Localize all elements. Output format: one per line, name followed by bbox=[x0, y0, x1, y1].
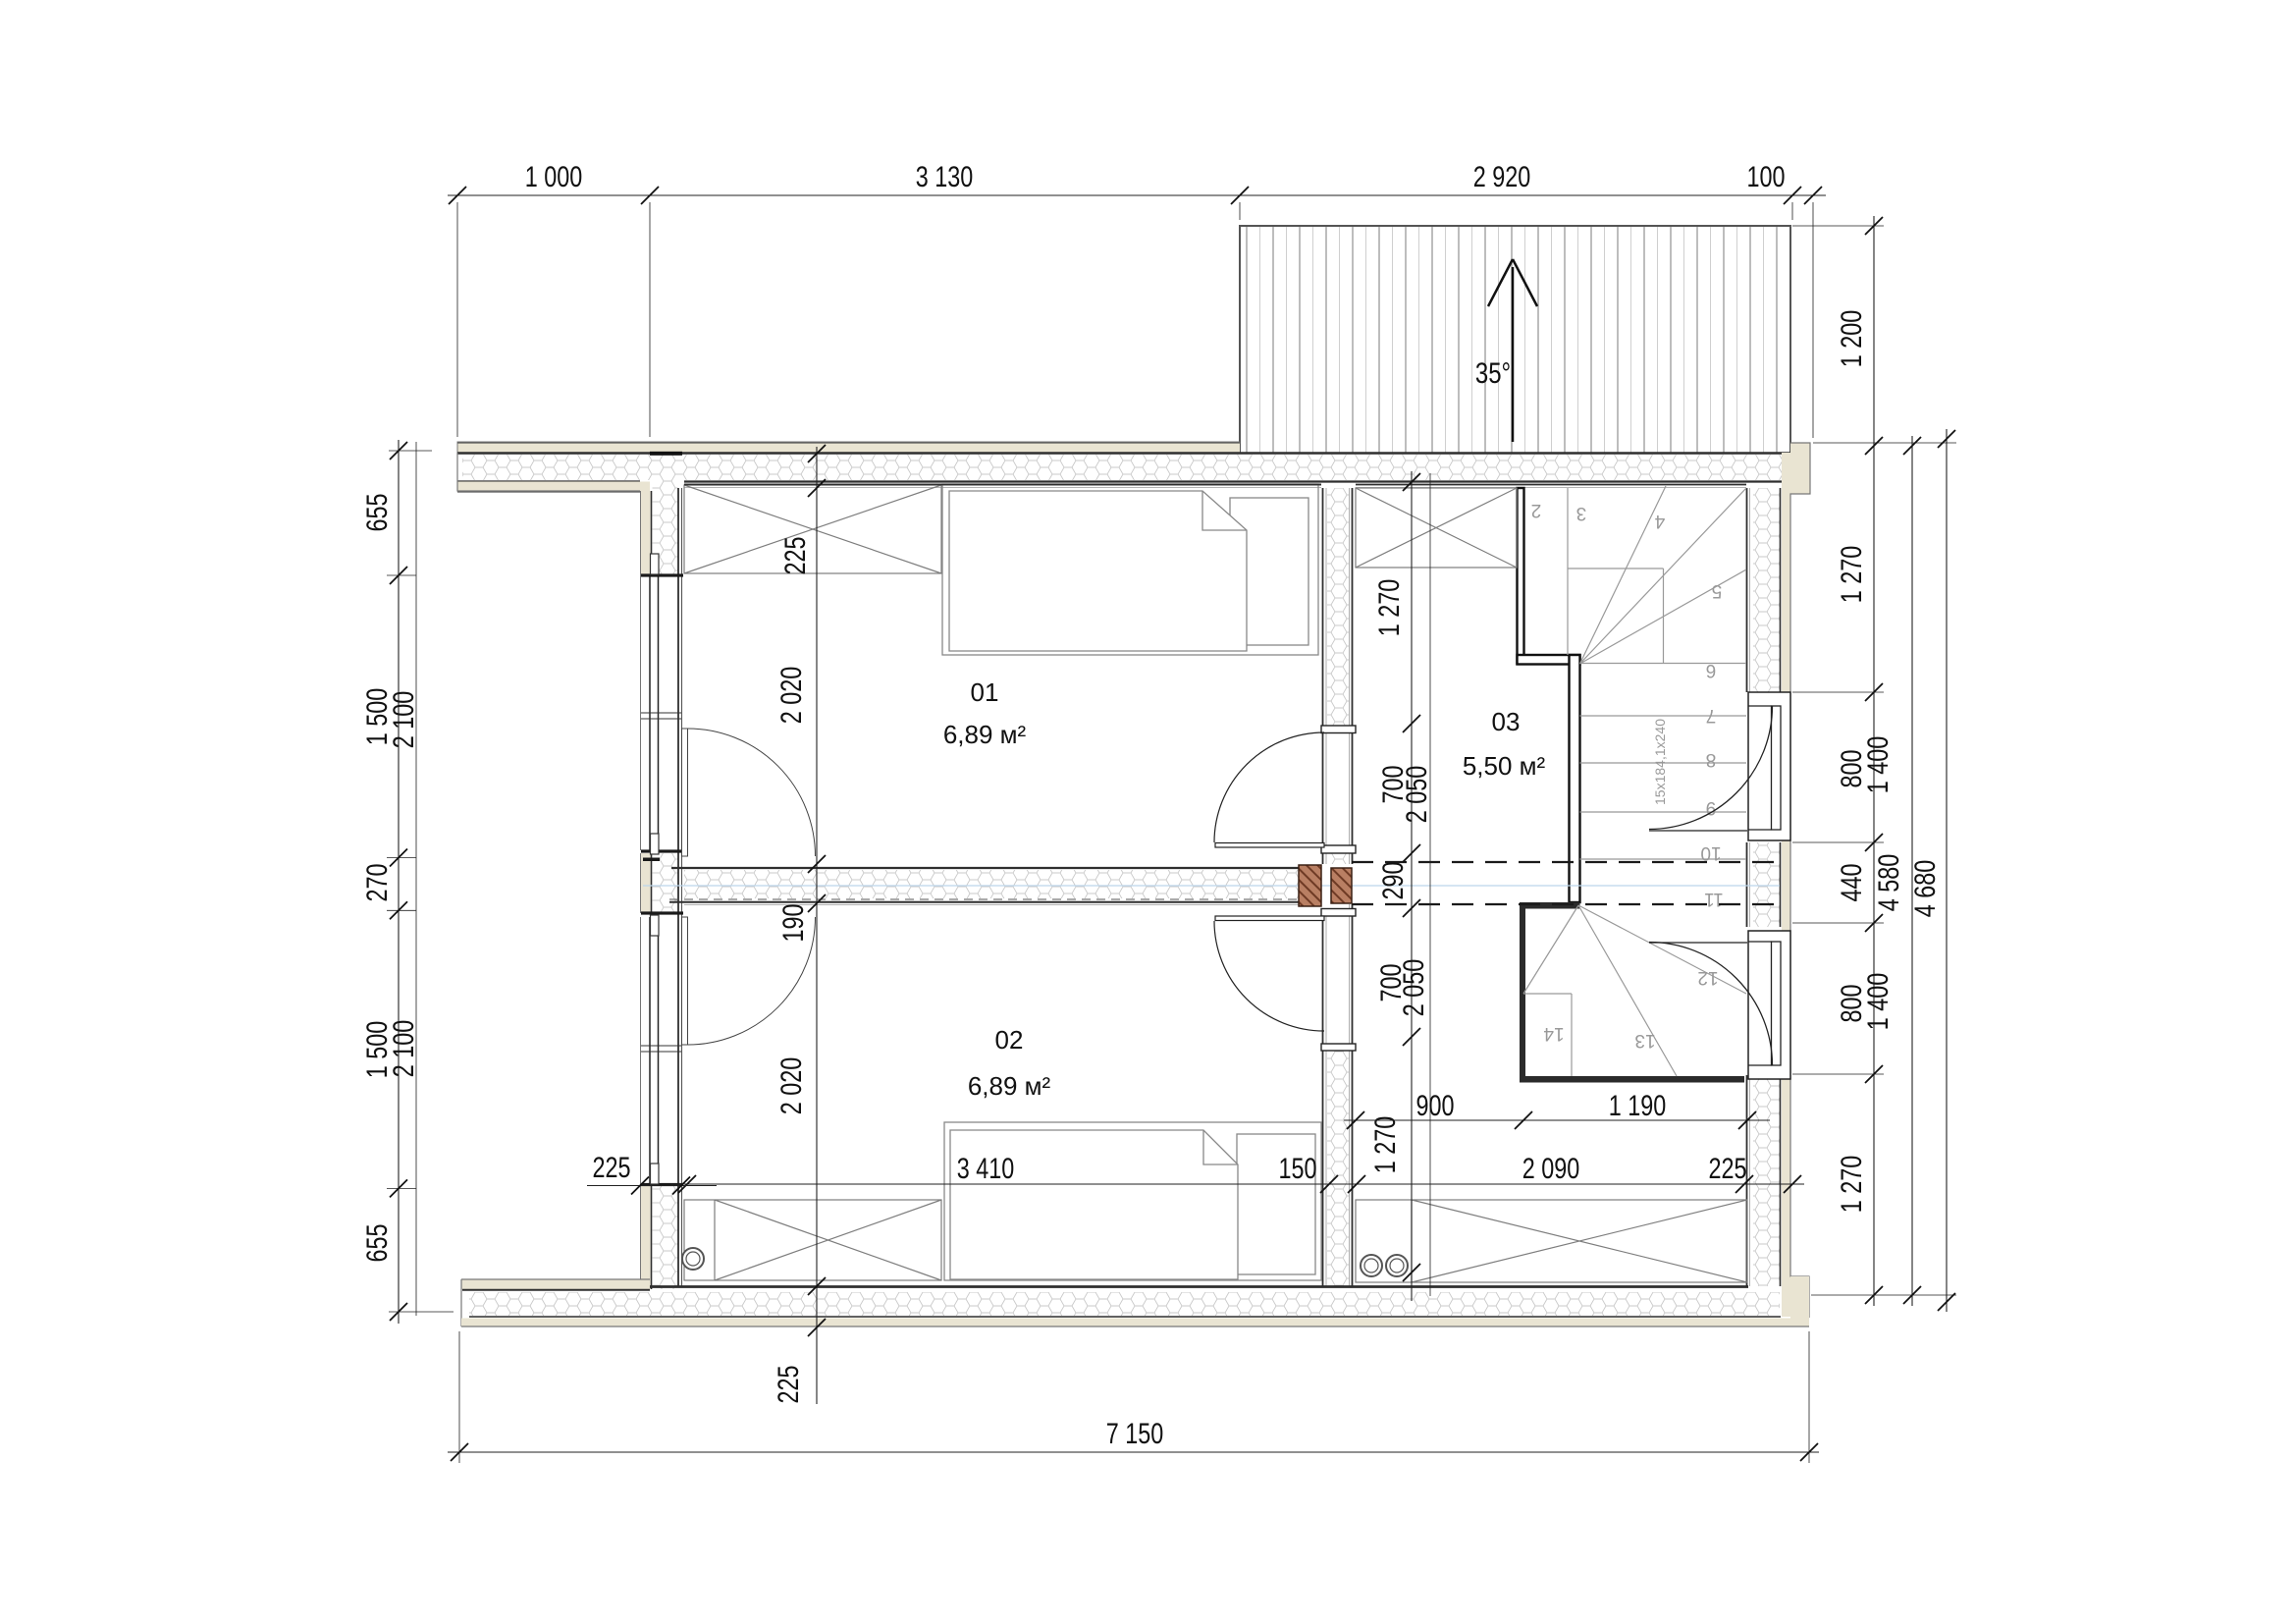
svg-text:440: 440 bbox=[1835, 863, 1867, 901]
svg-text:4 680: 4 680 bbox=[1908, 860, 1941, 918]
svg-text:2: 2 bbox=[1531, 500, 1542, 520]
svg-text:900: 900 bbox=[1415, 1089, 1454, 1121]
svg-text:655: 655 bbox=[360, 493, 393, 531]
svg-text:5,50 м²: 5,50 м² bbox=[1463, 751, 1546, 781]
svg-text:1 270: 1 270 bbox=[1835, 1156, 1867, 1214]
svg-text:270: 270 bbox=[360, 863, 393, 901]
svg-text:225: 225 bbox=[778, 536, 811, 574]
svg-text:655: 655 bbox=[360, 1223, 393, 1262]
svg-text:3 410: 3 410 bbox=[957, 1152, 1015, 1184]
svg-text:1 270: 1 270 bbox=[1368, 1116, 1401, 1174]
svg-text:1 400: 1 400 bbox=[1861, 736, 1894, 794]
svg-text:150: 150 bbox=[1278, 1152, 1316, 1184]
svg-text:225: 225 bbox=[772, 1365, 804, 1403]
svg-text:2 100: 2 100 bbox=[387, 691, 419, 749]
svg-text:100: 100 bbox=[1746, 160, 1785, 192]
svg-text:1 190: 1 190 bbox=[1609, 1089, 1667, 1121]
svg-text:2 920: 2 920 bbox=[1473, 160, 1531, 192]
svg-text:11: 11 bbox=[1704, 889, 1724, 909]
svg-text:15x184,1x240: 15x184,1x240 bbox=[1652, 719, 1668, 805]
svg-text:2 050: 2 050 bbox=[1400, 766, 1432, 824]
svg-text:01: 01 bbox=[971, 677, 999, 707]
svg-text:14: 14 bbox=[1543, 1023, 1565, 1044]
svg-text:7: 7 bbox=[1706, 705, 1717, 726]
svg-text:2 020: 2 020 bbox=[774, 667, 807, 725]
svg-text:1 400: 1 400 bbox=[1861, 973, 1894, 1031]
svg-text:2 050: 2 050 bbox=[1397, 959, 1429, 1017]
svg-text:7 150: 7 150 bbox=[1106, 1417, 1164, 1449]
svg-text:1 200: 1 200 bbox=[1835, 310, 1867, 368]
svg-text:4 580: 4 580 bbox=[1872, 854, 1904, 912]
svg-text:225: 225 bbox=[1708, 1152, 1746, 1184]
svg-text:2 020: 2 020 bbox=[774, 1057, 807, 1115]
svg-text:6,89 м²: 6,89 м² bbox=[943, 720, 1027, 749]
svg-text:12: 12 bbox=[1697, 967, 1718, 988]
svg-text:2 090: 2 090 bbox=[1522, 1152, 1580, 1184]
svg-text:2 100: 2 100 bbox=[387, 1020, 419, 1078]
svg-text:02: 02 bbox=[995, 1025, 1024, 1055]
svg-text:225: 225 bbox=[592, 1151, 630, 1183]
svg-text:1 270: 1 270 bbox=[1835, 546, 1867, 604]
svg-text:6,89 м²: 6,89 м² bbox=[968, 1071, 1051, 1101]
svg-text:4: 4 bbox=[1654, 511, 1665, 531]
svg-text:190: 190 bbox=[776, 903, 809, 942]
svg-text:3 130: 3 130 bbox=[916, 160, 974, 192]
svg-text:1 000: 1 000 bbox=[525, 160, 583, 192]
svg-text:290: 290 bbox=[1376, 861, 1409, 899]
svg-text:8: 8 bbox=[1706, 749, 1717, 770]
svg-text:1 270: 1 270 bbox=[1372, 579, 1405, 637]
svg-text:35°: 35° bbox=[1475, 355, 1511, 389]
svg-text:03: 03 bbox=[1492, 707, 1521, 736]
svg-text:10: 10 bbox=[1700, 842, 1721, 863]
svg-text:13: 13 bbox=[1634, 1030, 1655, 1051]
svg-text:5: 5 bbox=[1712, 580, 1723, 601]
svg-text:6: 6 bbox=[1706, 660, 1717, 680]
svg-text:3: 3 bbox=[1576, 503, 1587, 523]
